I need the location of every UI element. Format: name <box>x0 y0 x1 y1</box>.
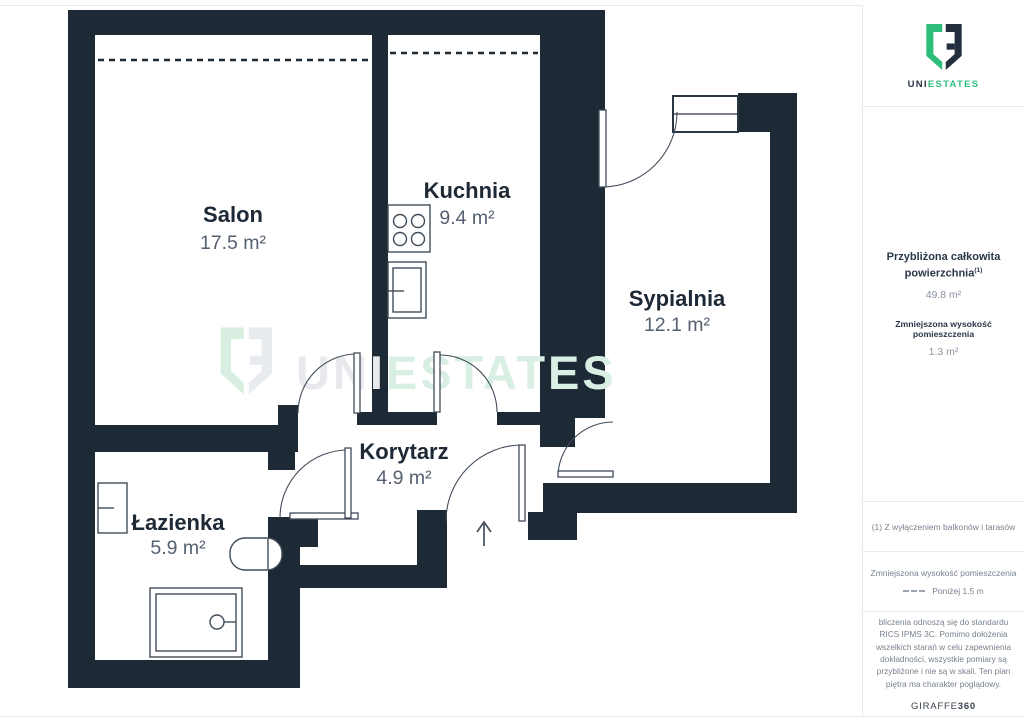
room-area: 9.4 m² <box>439 207 495 229</box>
floor-plan-svg: UNIESTATES <box>0 0 862 724</box>
toilet-icon <box>230 538 282 570</box>
disclaimer-text: bliczenia odnoszą się do standardu RICS … <box>870 616 1018 691</box>
room-label-salon: Salon 17.5 m² <box>200 202 267 254</box>
giraffe360-brand: GIRAFFE360 <box>911 701 976 712</box>
shower-icon <box>150 588 242 657</box>
bathroom-sink-icon <box>98 483 127 533</box>
room-label-lazienka: Łazienka 5.9 m² <box>132 510 226 559</box>
legend-title: Zmniejszona wysokość pomieszczenia <box>869 568 1019 578</box>
logo-text-uni: UNI <box>908 79 928 90</box>
legend-section: Zmniejszona wysokość pomieszczenia Poniż… <box>863 552 1024 612</box>
room-label-kuchnia: Kuchnia 9.4 m² <box>424 178 512 229</box>
entrance-arrow-icon <box>477 522 491 546</box>
uniestates-logo-text: UNIESTATES <box>908 79 980 90</box>
dashed-line-icon <box>903 590 925 592</box>
room-name: Salon <box>203 202 263 227</box>
floor-plan-canvas: UNIESTATES <box>0 0 862 724</box>
room-area: 17.5 m² <box>200 232 267 254</box>
reduced-height-value: 1.3 m² <box>929 346 959 358</box>
footnote-marker: (1) <box>974 267 982 274</box>
room-label-sypialnia: Sypialnia 12.1 m² <box>629 286 726 336</box>
footnote-text: (1) Z wyłączeniem balkonów i tarasów <box>869 522 1019 532</box>
floor-plan-page: UNIESTATES <box>0 0 1024 724</box>
brand-suffix: 360 <box>958 701 976 712</box>
room-name: Łazienka <box>132 510 226 535</box>
disclaimer-section: bliczenia odnoszą się do standardu RICS … <box>863 612 1024 716</box>
logo-text-estates: ESTATES <box>928 79 980 90</box>
legend-label: Poniżej 1.5 m <box>932 586 984 596</box>
room-area: 5.9 m² <box>150 537 206 559</box>
room-name: Kuchnia <box>424 178 512 203</box>
total-area-title: Przybliżona całkowita powierzchnia(1) <box>887 250 1001 281</box>
reduced-height-title: Zmniejszona wysokość pomieszczenia <box>869 319 1019 339</box>
bottom-divider <box>0 716 1024 717</box>
room-area: 12.1 m² <box>644 314 711 336</box>
legend-row: Poniżej 1.5 m <box>903 586 984 596</box>
uniestates-logo-icon <box>921 22 967 72</box>
footnote-section: (1) Z wyłączeniem balkonów i tarasów <box>863 502 1024 552</box>
room-area: 4.9 m² <box>376 467 432 489</box>
kitchen-sink-icon <box>388 262 426 318</box>
window-sypialnia <box>673 96 738 132</box>
room-label-korytarz: Korytarz 4.9 m² <box>359 439 448 489</box>
room-name: Sypialnia <box>629 286 726 311</box>
watermark-text: UNIESTATES <box>296 346 617 399</box>
total-area-value: 49.8 m² <box>926 289 962 301</box>
info-sidebar: UNIESTATES Przybliżona całkowita powierz… <box>862 5 1024 716</box>
door-entrance <box>446 445 525 521</box>
brand-name: GIRAFFE <box>911 701 958 712</box>
logo-section: UNIESTATES <box>863 5 1024 107</box>
door-balcony <box>599 110 677 187</box>
summary-section: Przybliżona całkowita powierzchnia(1) 49… <box>863 107 1024 502</box>
stove-icon <box>388 205 430 252</box>
watermark-shield-icon <box>221 328 272 395</box>
room-name: Korytarz <box>359 439 448 464</box>
